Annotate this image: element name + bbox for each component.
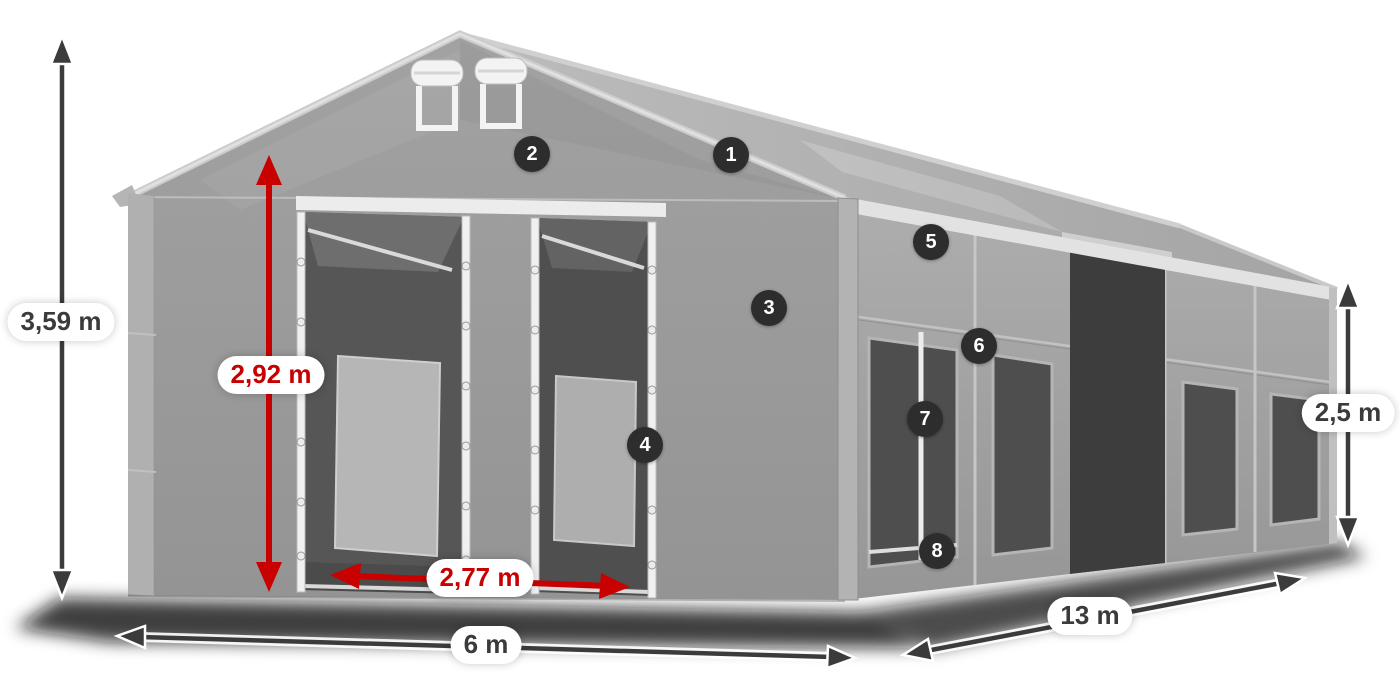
right-door-opening [535, 218, 652, 596]
dim-label-entrance-width: 2,77 m [427, 559, 534, 597]
front-left-corner-pole [128, 193, 154, 596]
callout-badge-6[interactable]: 6 [961, 328, 997, 364]
callout-badge-3[interactable]: 3 [751, 290, 787, 326]
callout-badge-2[interactable]: 2 [514, 136, 550, 172]
dim-label-entrance-height: 2,92 m [218, 356, 325, 394]
dim-label-side-height: 2,5 m [1302, 394, 1395, 432]
callout-badge-4[interactable]: 4 [627, 427, 663, 463]
front-right-corner-pole [838, 198, 858, 600]
left-door-opening [301, 212, 464, 594]
dim-label-front-width: 6 m [451, 626, 522, 664]
left-door-window [335, 356, 440, 556]
callout-badge-8[interactable]: 8 [919, 533, 955, 569]
dim-label-side-length: 13 m [1047, 597, 1132, 635]
tent-illustration [0, 0, 1400, 700]
side-doorway-open [1062, 232, 1172, 574]
right-door-window [554, 376, 636, 546]
dim-label-total-height: 3,59 m [8, 303, 115, 341]
callout-badge-5[interactable]: 5 [913, 224, 949, 260]
callout-badge-7[interactable]: 7 [907, 401, 943, 437]
tent-dimension-diagram: 3,59 m 2,92 m 2,77 m 6 m 13 m 2,5 m 1 2 … [0, 0, 1400, 700]
callout-badge-1[interactable]: 1 [713, 137, 749, 173]
